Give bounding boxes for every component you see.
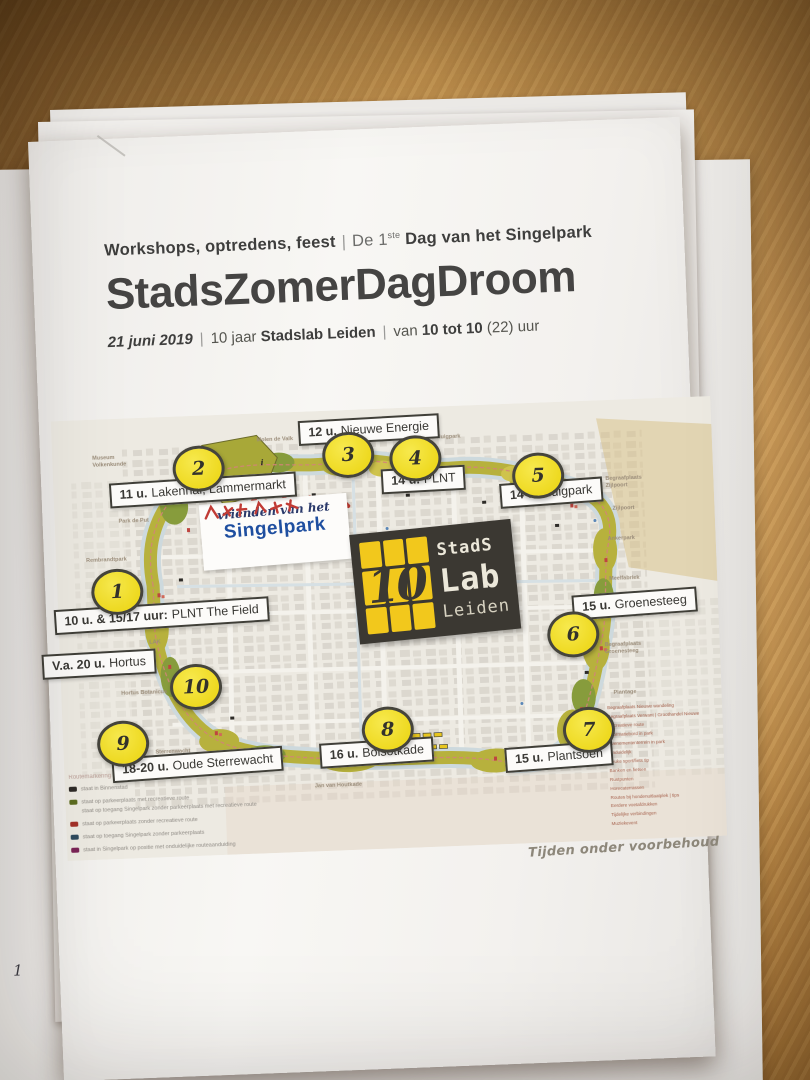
route-legend: Routemarkering staat in Binnenstad staat… — [68, 766, 301, 860]
stadslab-tiles-icon: 10 — [359, 536, 435, 634]
page-title: StadsZomerDagDroom — [105, 248, 673, 320]
place-label: Plantage — [613, 689, 636, 696]
event-hours: 10 tot 10 — [421, 319, 482, 338]
header-subtitle-bottom: 21 juni 2019|10 jaar Stadslab Leiden|van… — [107, 312, 673, 351]
place-label: Museum Volkenkunde — [92, 454, 142, 469]
header-subtop-left: Workshops, optredens, feest — [104, 233, 336, 260]
legend-swatch-purple — [71, 848, 79, 853]
separator: | — [192, 330, 211, 348]
anniversary-text: 10 jaar — [210, 328, 256, 347]
place-label: Meelfabriek — [609, 575, 639, 583]
event-date: 21 juni 2019 — [107, 330, 193, 350]
place-label: Huigpark — [437, 434, 461, 442]
stadslab-leiden-logo: 10 StadS Lab Leiden — [349, 519, 521, 645]
vrienden-van-het-singelpark-logo: vrienden van het Singelpark — [199, 493, 352, 571]
info-point-marker: i — [260, 457, 263, 467]
organizer-name: Stadslab Leiden — [260, 323, 376, 344]
header-subtop-mid: De 1 — [352, 231, 388, 250]
singelpark-event-map: i Molen de Valk Museum Volkenkunde Huigp… — [51, 396, 727, 861]
stadslab-word-lab: Lab — [438, 556, 509, 601]
legend-swatch-blue — [71, 835, 79, 840]
place-label: Molen de Valk — [257, 436, 294, 444]
place-label: Zijlpoort — [612, 505, 634, 512]
place-label: Begraafplaats Zijlpoort — [605, 474, 660, 489]
legend-row: staat in Singelpark op positie met ondui… — [71, 838, 301, 855]
page-number: 1 — [13, 961, 23, 979]
stadslab-10: 10 — [365, 555, 428, 614]
place-label: Ankerpark — [608, 535, 635, 543]
place-label: Begraafplaats Groenesteeg — [605, 640, 665, 655]
legend-swatch-green — [69, 800, 77, 805]
header-subtop-right: Dag van het Singelpark — [405, 223, 592, 248]
flyer-header: Workshops, optredens, feest|De 1ste Dag … — [104, 219, 674, 350]
photo-of-flyer-on-desk: 1 Workshops, optredens, feest|De 1ste Da… — [0, 0, 810, 1080]
corner-scribble-mark — [97, 135, 126, 157]
flyer-front-sheet: Workshops, optredens, feest|De 1ste Dag … — [28, 117, 716, 1080]
ordinal-superscript: ste — [387, 230, 400, 240]
time-prefix: van — [393, 322, 418, 340]
map-key: Begraafplaats Nieuwe wandelingBegraafpla… — [607, 699, 737, 829]
place-label: Park de Put — [119, 518, 149, 526]
legend-swatch-red — [70, 821, 78, 826]
separator: | — [375, 323, 394, 341]
legend-row: staat op parkeerplaats met recreatieve r… — [69, 790, 299, 815]
event-hours-suffix: (22) uur — [486, 317, 539, 336]
separator: | — [335, 232, 352, 251]
place-label: LAK — [149, 639, 161, 646]
legend-swatch-black — [69, 787, 77, 792]
stadslab-word-leiden: Leiden — [442, 595, 511, 622]
